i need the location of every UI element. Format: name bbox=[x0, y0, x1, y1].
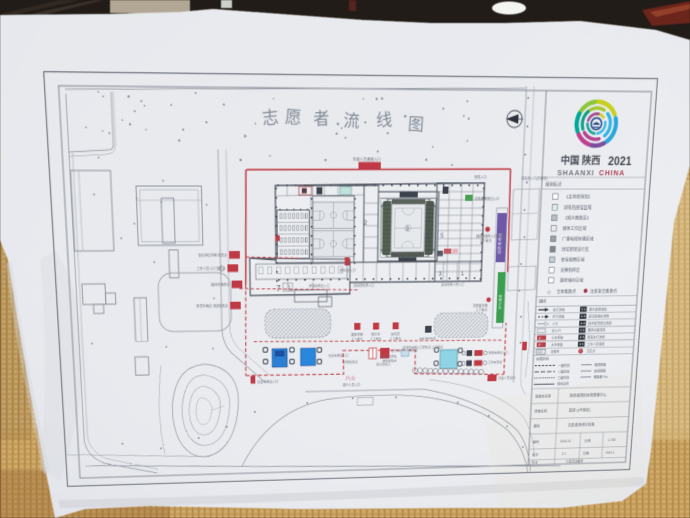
svg-text:运动员检录入口: 运动员检录入口 bbox=[354, 283, 374, 288]
svg-text:媒体车辆停靠: 媒体车辆停靠 bbox=[211, 282, 230, 287]
svg-text:训练热身馆区域: 训练热身馆区域 bbox=[564, 204, 592, 210]
svg-text:协办单位车辆 检查点: 协办单位车辆 检查点 bbox=[198, 252, 228, 257]
svg-text:2.7: 2.7 bbox=[562, 452, 566, 455]
svg-text:小型活动备案: 小型活动备案 bbox=[566, 459, 584, 464]
svg-text:观众人员入口: 观众人员入口 bbox=[343, 382, 361, 387]
svg-text:pagbkwnw点: pagbkwnw点 bbox=[419, 336, 436, 341]
svg-text:2021.1: 2021.1 bbox=[605, 451, 614, 455]
svg-text:技术官员进出流线: 技术官员进出流线 bbox=[588, 321, 612, 326]
svg-text:运动员车辆入口安检点 上下客点: 运动员车辆入口安检点 上下客点 bbox=[402, 344, 443, 349]
svg-text:运动员等入场入口: 运动员等入场入口 bbox=[441, 282, 464, 287]
svg-text:《观众集散区》: 《观众集散区》 bbox=[563, 215, 591, 221]
svg-text:场地边界: 场地边界 bbox=[557, 381, 569, 385]
svg-text:观众车: 观众车 bbox=[371, 332, 380, 337]
svg-text:社会人员出口: 社会人员出口 bbox=[498, 375, 516, 380]
svg-text:卫生点: 卫生点 bbox=[586, 349, 595, 353]
svg-text:硬质隔离: 硬质隔离 bbox=[594, 362, 606, 366]
svg-text:线: 线 bbox=[376, 109, 393, 130]
svg-text:2: 2 bbox=[364, 219, 368, 226]
svg-text:5: 5 bbox=[440, 233, 444, 239]
svg-text:图名: 图名 bbox=[534, 424, 541, 428]
svg-text:P: P bbox=[538, 343, 541, 347]
svg-text:安保观察区域: 安保观察区域 bbox=[561, 257, 585, 263]
svg-text:媒体车辆: 媒体车辆 bbox=[351, 332, 363, 337]
svg-text:软质隔离: 软质隔离 bbox=[594, 368, 606, 372]
svg-text:☆: ☆ bbox=[546, 289, 551, 296]
svg-text:愿: 愿 bbox=[284, 106, 302, 128]
svg-text:志愿者流线分析图: 志愿者流线分析图 bbox=[568, 421, 595, 427]
svg-text:车行流线: 车行流线 bbox=[553, 307, 565, 312]
svg-text:社会车辆出入口: 社会车辆出入口 bbox=[257, 379, 279, 384]
svg-text:上下客点: 上下客点 bbox=[476, 307, 488, 312]
svg-text:出入口: 出入口 bbox=[552, 328, 561, 332]
svg-text:上下客点: 上下客点 bbox=[351, 336, 363, 341]
svg-text:P: P bbox=[539, 336, 542, 340]
svg-text:竞赛指挥区: 竞赛指挥区 bbox=[560, 267, 580, 273]
svg-text:场馆名称: 场馆名称 bbox=[534, 409, 547, 413]
svg-text:附注: 附注 bbox=[532, 460, 538, 464]
svg-text:CHINA: CHINA bbox=[599, 169, 626, 177]
svg-text:SHAANXI: SHAANXI bbox=[557, 169, 595, 177]
svg-text:1: 1 bbox=[288, 285, 291, 290]
svg-text:竞委会名称: 竞委会名称 bbox=[535, 394, 551, 399]
svg-text:观众出入口: 观众出入口 bbox=[339, 268, 355, 273]
svg-text:陕西省国际体育赛事中心: 陕西省国际体育赛事中心 bbox=[570, 392, 608, 399]
svg-text:路线: 路线 bbox=[539, 298, 547, 304]
svg-text:社会车辆出入口: 社会车辆出入口 bbox=[328, 353, 348, 358]
svg-text:隔离栅 Pro: 隔离栅 Pro bbox=[594, 375, 608, 379]
svg-text:1: 1 bbox=[461, 271, 465, 277]
svg-text:全体集散点: 全体集散点 bbox=[556, 288, 576, 294]
svg-text:篮球 (3号馆区): 篮球 (3号馆区) bbox=[569, 407, 591, 413]
svg-text:小车停放: 小车停放 bbox=[551, 335, 563, 340]
svg-text:流: 流 bbox=[343, 110, 360, 131]
svg-text:+: + bbox=[579, 350, 581, 353]
svg-text:编号: 编号 bbox=[533, 440, 539, 444]
svg-text:步行流线: 步行流线 bbox=[552, 314, 564, 319]
svg-text:3: 3 bbox=[438, 271, 442, 277]
svg-text:工作车安检: 工作车安检 bbox=[488, 360, 503, 365]
svg-text:运动员: 运动员 bbox=[391, 332, 400, 337]
svg-text:贺宾车行流线: 贺宾车行流线 bbox=[587, 335, 605, 340]
svg-text:上下客点: 上下客点 bbox=[480, 238, 492, 243]
svg-text:妓会面入口(东備用): 妓会面入口(东備用) bbox=[521, 176, 547, 181]
svg-text:上下客点: 上下客点 bbox=[389, 336, 401, 341]
svg-text:CD: CD bbox=[538, 350, 543, 354]
svg-text:广播电视转播区域: 广播电视转播区域 bbox=[562, 236, 594, 242]
svg-text:图例标识: 图例标识 bbox=[545, 181, 562, 187]
svg-text:《主体育场馆》: 《主体育场馆》 bbox=[564, 194, 592, 200]
svg-text:中国 陕西: 中国 陕西 bbox=[560, 154, 600, 167]
svg-text:2042-11: 2042-11 bbox=[560, 440, 571, 444]
svg-text:上下客点: 上下客点 bbox=[370, 336, 382, 341]
svg-text:大车停放: 大车停放 bbox=[551, 342, 563, 347]
svg-text:三级防线: 三级防线 bbox=[557, 375, 569, 379]
svg-text:八☆: 八☆ bbox=[345, 375, 355, 382]
svg-text:注意安全集散点: 注意安全集散点 bbox=[590, 288, 618, 294]
svg-text:志愿者车辆: 志愿者车辆 bbox=[473, 303, 488, 308]
svg-text:7: 7 bbox=[276, 284, 280, 293]
svg-text:志愿者集散出入口: 志愿者集散出入口 bbox=[475, 196, 500, 201]
svg-text:人行: 人行 bbox=[552, 321, 558, 325]
svg-text:贺宾入口: 贺宾入口 bbox=[474, 175, 487, 180]
svg-text:媒体记者流线: 媒体记者流线 bbox=[588, 328, 606, 333]
svg-text:媒体安检点: 媒体安检点 bbox=[382, 358, 397, 363]
svg-text:贺宾车辆点入口: 贺宾车辆点入口 bbox=[488, 350, 508, 355]
svg-text:图: 图 bbox=[407, 114, 424, 135]
svg-text:日期: 日期 bbox=[583, 451, 589, 455]
svg-text:媒体转播车入口(预留): 媒体转播车入口(预留) bbox=[476, 234, 505, 239]
svg-text:工作人员安检: 工作人员安检 bbox=[380, 354, 398, 359]
svg-text:工作人员流线: 工作人员流线 bbox=[587, 342, 605, 347]
svg-text:志: 志 bbox=[261, 106, 280, 128]
svg-text:1:750: 1:750 bbox=[608, 439, 616, 442]
svg-text:厚连建筑出入口: 厚连建筑出入口 bbox=[309, 283, 330, 288]
svg-text:运动员进出流线: 运动员进出流线 bbox=[588, 314, 609, 319]
svg-text:出租车: 出租车 bbox=[551, 349, 560, 353]
svg-text:二级防线: 二级防线 bbox=[558, 369, 570, 373]
svg-text:器材储存区域: 器材储存区域 bbox=[560, 277, 584, 283]
svg-text:工作人员入口 安检点: 工作人员入口 安检点 bbox=[196, 266, 225, 271]
svg-text:一级防线: 一级防线 bbox=[558, 363, 570, 367]
svg-text:安保防线: 安保防线 bbox=[536, 356, 549, 361]
svg-text:观众进场流线: 观众进场流线 bbox=[589, 307, 607, 312]
svg-text:媒体工作区域: 媒体工作区域 bbox=[562, 226, 586, 232]
svg-text:版次: 版次 bbox=[532, 452, 538, 456]
svg-text:比例: 比例 bbox=[584, 438, 590, 442]
svg-text:3: 3 bbox=[406, 225, 410, 232]
svg-text:2021: 2021 bbox=[608, 154, 632, 168]
svg-text:安保人员通道入口: 安保人员通道入口 bbox=[353, 157, 381, 162]
svg-text:者: 者 bbox=[313, 108, 330, 129]
svg-text:贺员车辆点 流线检查点: 贺员车辆点 流线检查点 bbox=[196, 303, 228, 308]
svg-text:安保检查点: 安保检查点 bbox=[343, 359, 358, 364]
svg-text:场馆管理运行区: 场馆管理运行区 bbox=[561, 246, 589, 252]
